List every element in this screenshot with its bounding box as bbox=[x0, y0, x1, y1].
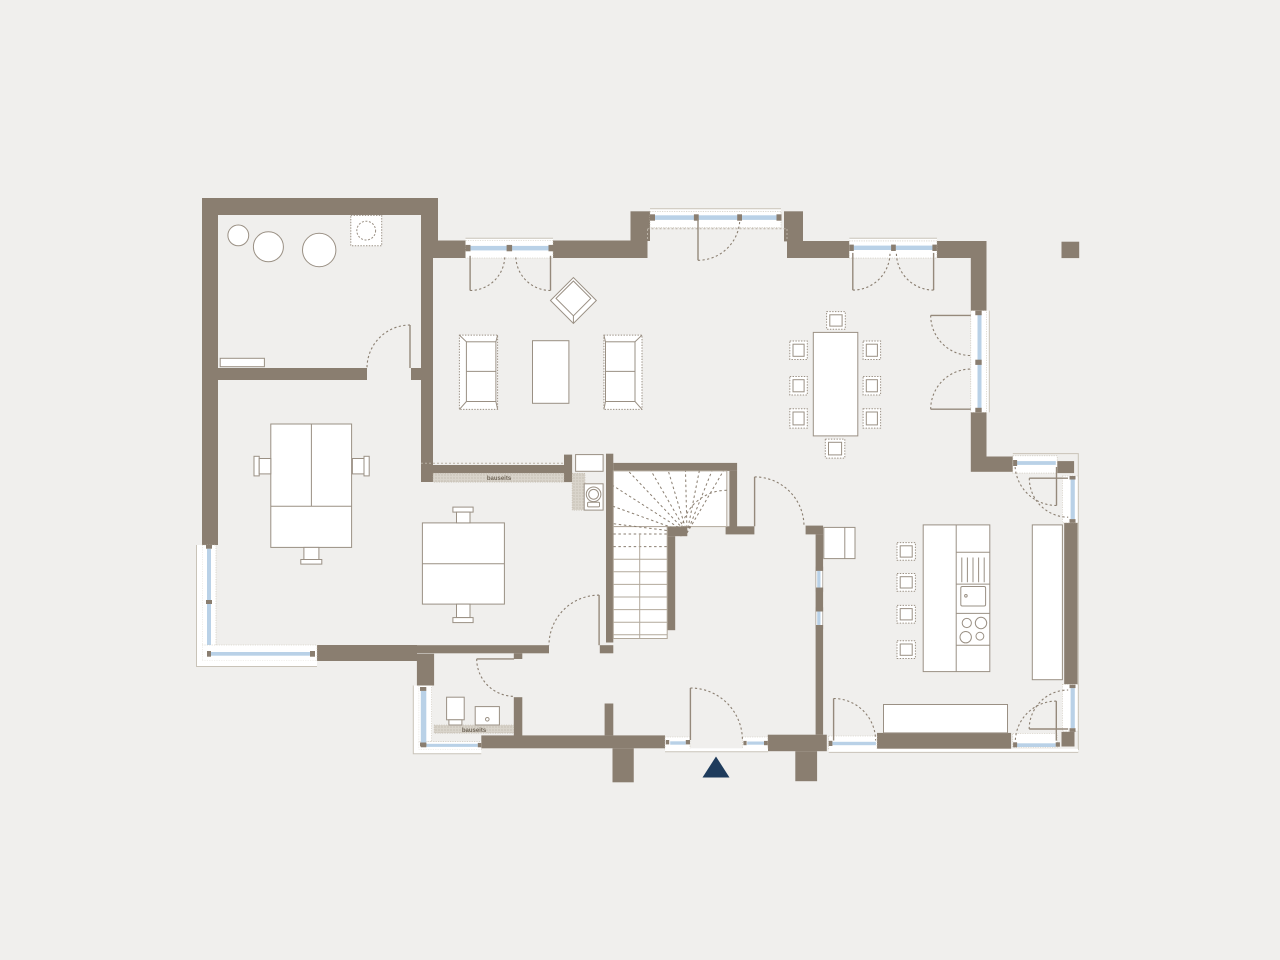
svg-text:bauseits: bauseits bbox=[462, 728, 487, 734]
svg-text:bauseits: bauseits bbox=[487, 476, 512, 482]
